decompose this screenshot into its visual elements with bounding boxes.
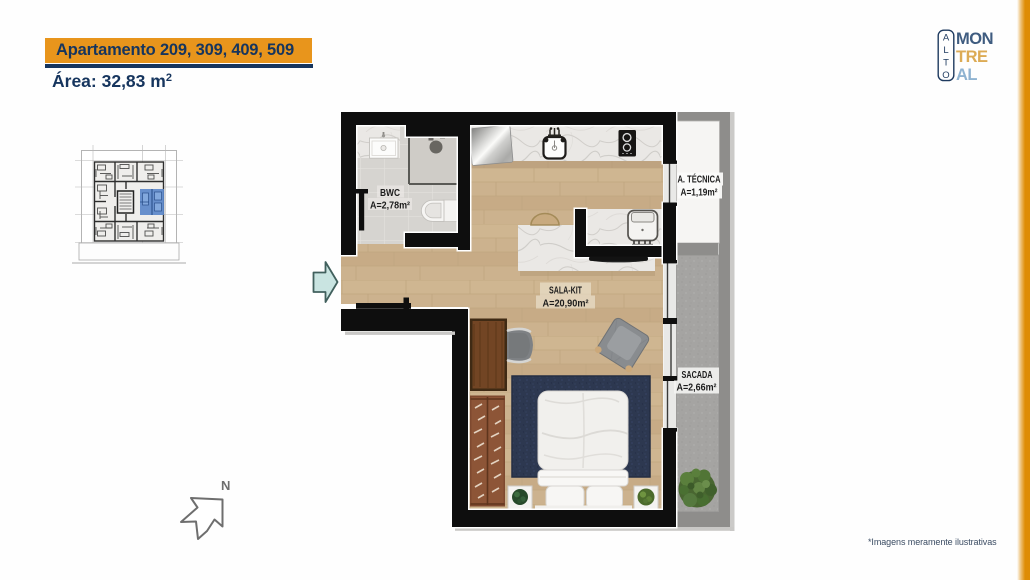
- svg-text:AL: AL: [956, 66, 977, 84]
- svg-text:A: A: [943, 33, 950, 44]
- svg-text:SACADA: SACADA: [682, 370, 713, 381]
- svg-text:TRE: TRE: [956, 48, 988, 66]
- svg-text:N: N: [221, 478, 230, 493]
- svg-text:A. TÉCNICA: A. TÉCNICA: [678, 173, 721, 186]
- svg-text:L: L: [943, 45, 948, 56]
- svg-text:O: O: [942, 70, 949, 81]
- svg-text:A=2,78m²: A=2,78m²: [370, 201, 411, 212]
- svg-text:BWC: BWC: [380, 188, 400, 199]
- svg-text:A=1,19m²: A=1,19m²: [681, 188, 719, 199]
- svg-text:A=20,90m²: A=20,90m²: [543, 299, 590, 310]
- svg-text:SALA-KIT: SALA-KIT: [549, 286, 582, 297]
- svg-text:T: T: [943, 57, 949, 68]
- svg-text:MON: MON: [956, 30, 993, 48]
- svg-text:A=2,66m²: A=2,66m²: [677, 383, 718, 394]
